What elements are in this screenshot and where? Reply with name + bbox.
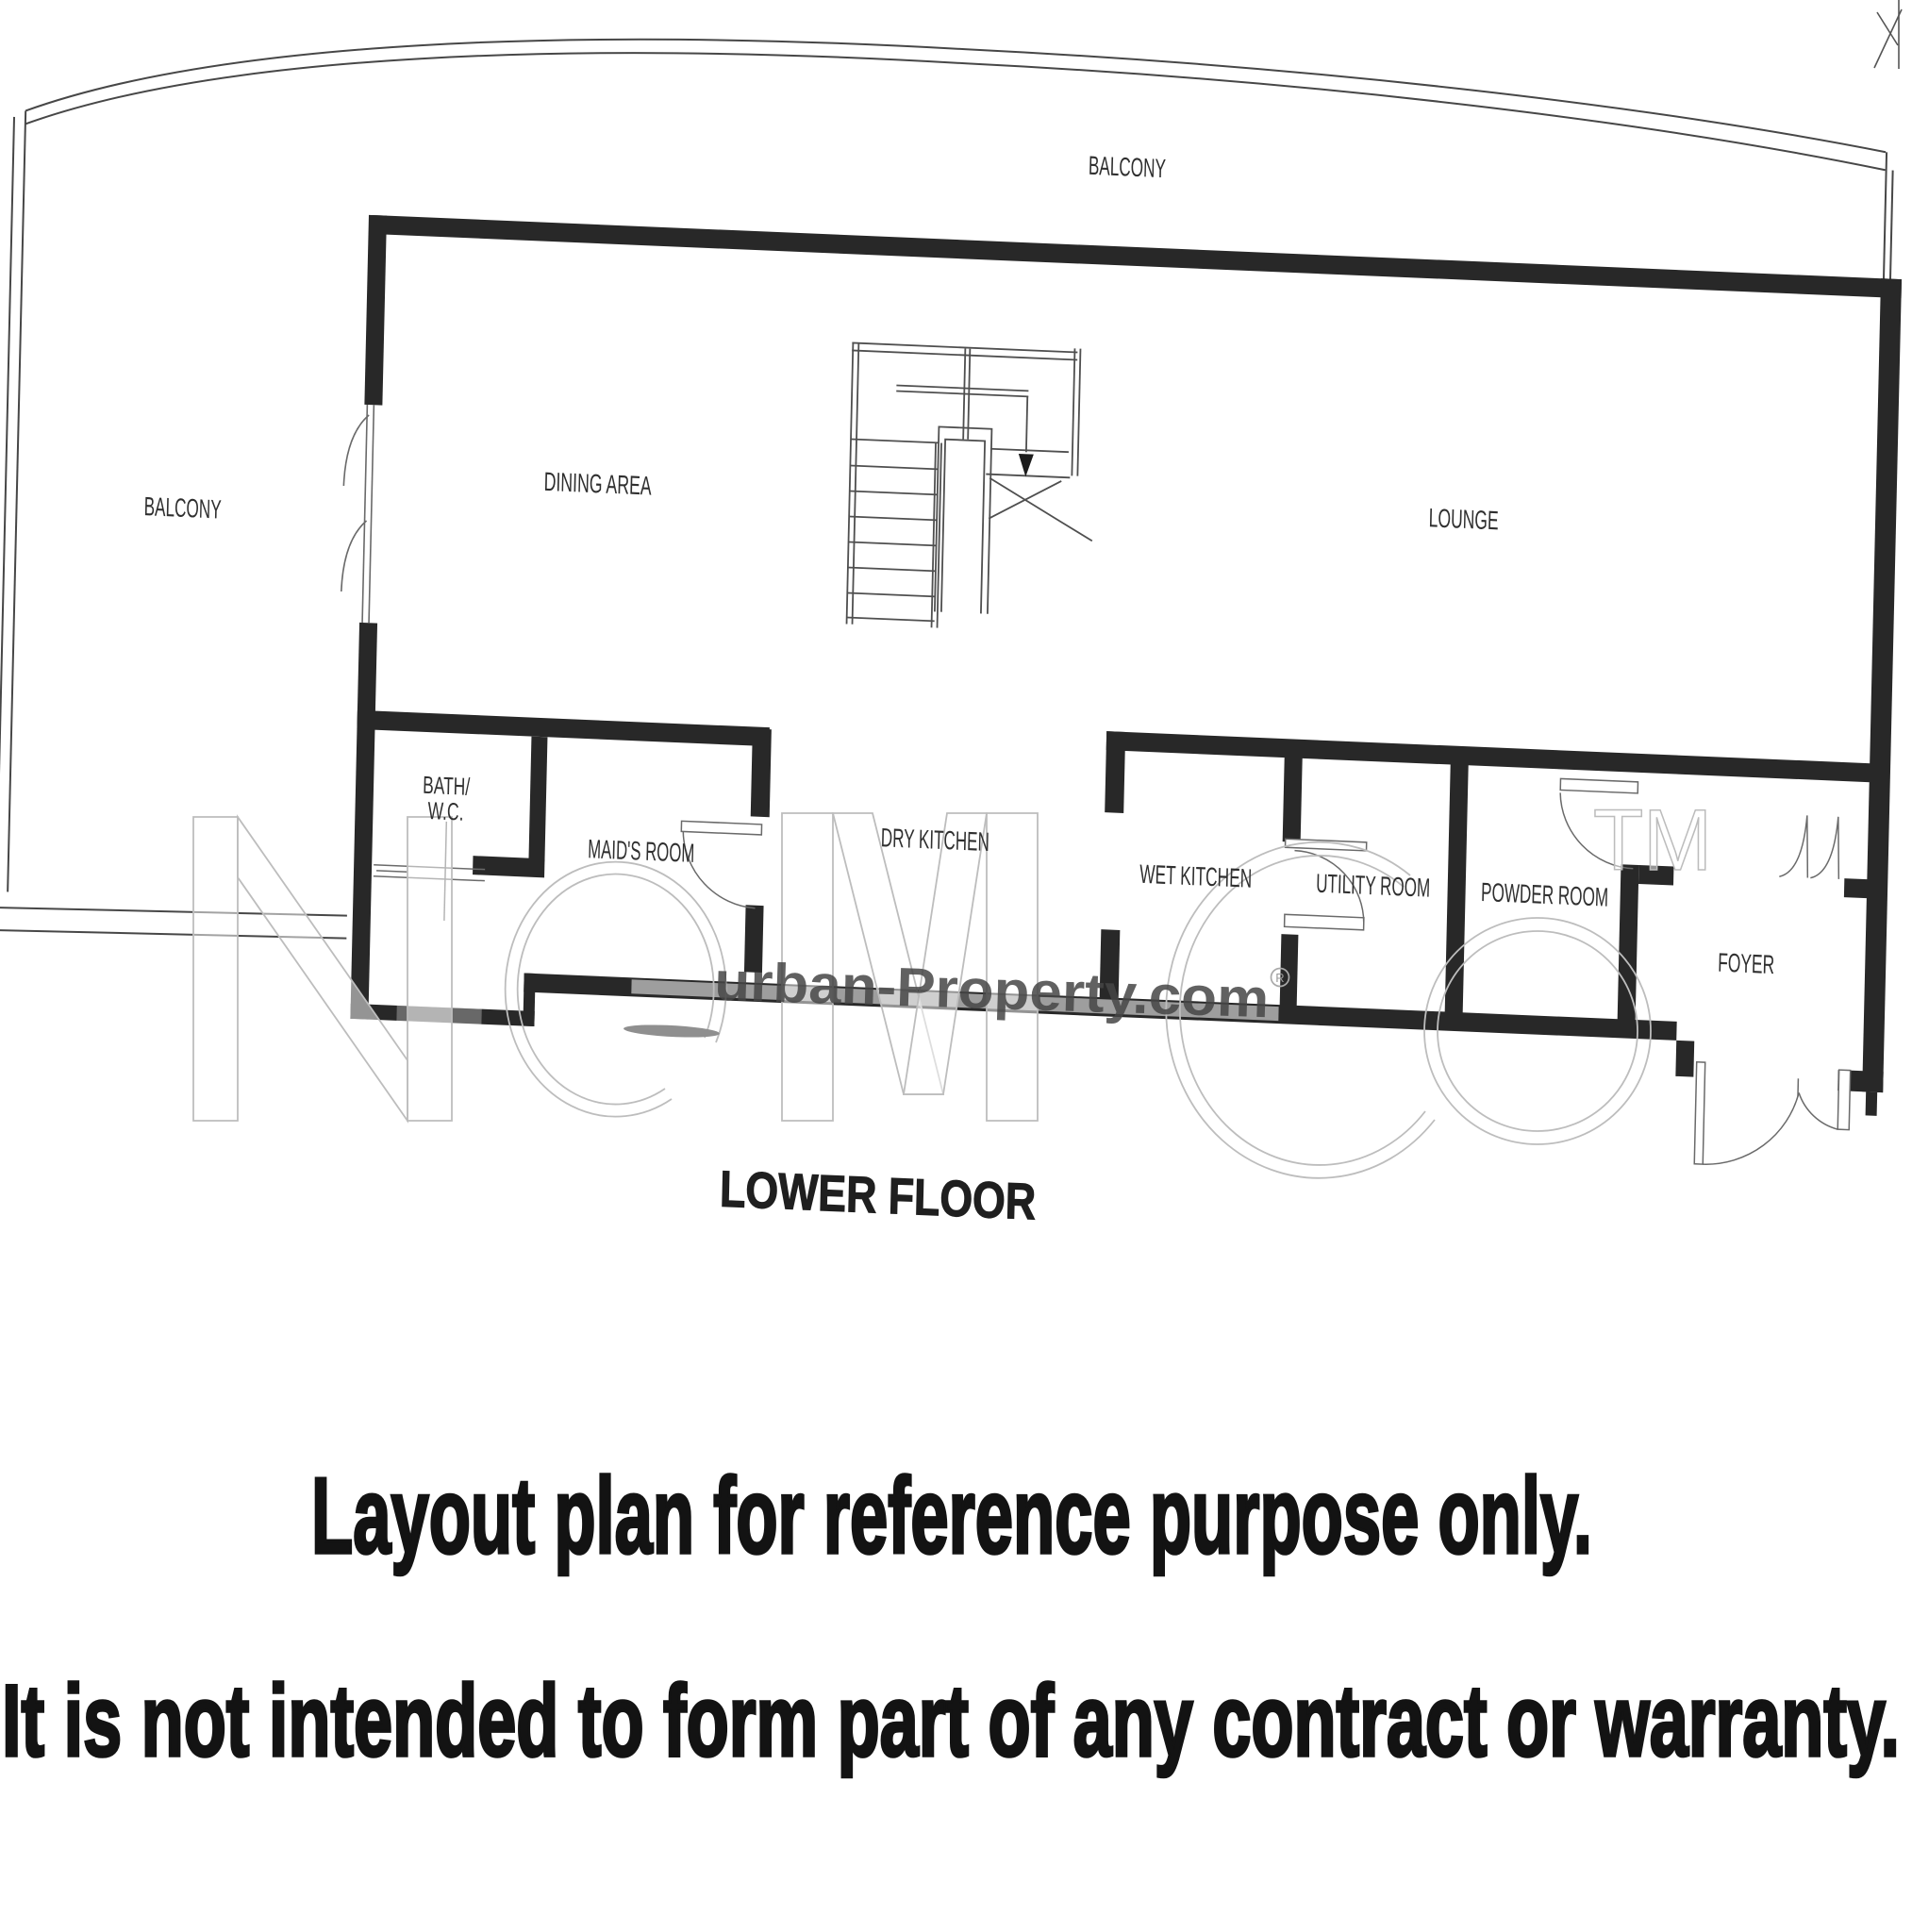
svg-text:TM: TM — [1593, 792, 1712, 889]
svg-text:W.C.: W.C. — [427, 796, 464, 826]
svg-text:DINING AREA: DINING AREA — [543, 467, 652, 501]
svg-text:WET KITCHEN: WET KITCHEN — [1139, 859, 1253, 893]
svg-text:R: R — [1275, 971, 1284, 985]
svg-text:FOYER: FOYER — [1718, 948, 1775, 980]
svg-text:Layout plan for reference purp: Layout plan for reference purpose only. — [311, 1457, 1592, 1576]
svg-text:LOUNGE: LOUNGE — [1428, 503, 1499, 535]
svg-text:MAID'S ROOM: MAID'S ROOM — [588, 834, 695, 868]
svg-text:It is not intended to form par: It is not intended to form part of any c… — [2, 1663, 1900, 1777]
svg-text:UTILITY ROOM: UTILITY ROOM — [1316, 869, 1431, 903]
svg-text:DRY KITCHEN: DRY KITCHEN — [881, 823, 990, 857]
svg-text:BALCONY: BALCONY — [1089, 151, 1167, 183]
svg-text:POWDER ROOM: POWDER ROOM — [1481, 877, 1609, 912]
svg-text:BALCONY: BALCONY — [143, 491, 222, 524]
